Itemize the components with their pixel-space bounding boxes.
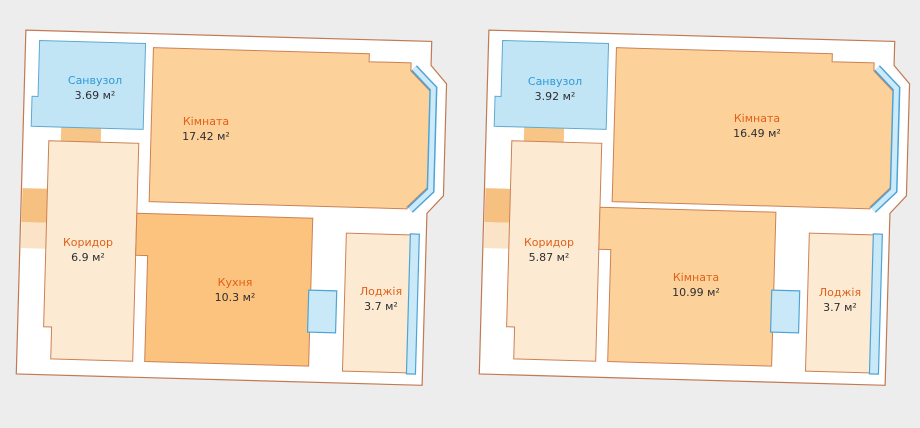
- room-bathroom-shape: [31, 40, 145, 129]
- floor-plan-left-drawing: [0, 0, 460, 410]
- room-bathroom-shape: [494, 40, 608, 129]
- room-corridor-shape: [506, 141, 602, 361]
- room-corridor-shape: [43, 141, 139, 361]
- room-living-shape: [149, 48, 431, 210]
- room-loggia-shape: [805, 233, 877, 373]
- room-living-shape: [612, 48, 894, 210]
- floor-plans-canvas: Санвузол 3.69 м² Кімната 17.42 м² Коридо…: [0, 0, 920, 428]
- kitchen-loggia-window: [308, 290, 337, 333]
- floor-plan-right-drawing: [463, 0, 920, 410]
- floor-plan-right[interactable]: Санвузол 3.92 м² Кімната 16.49 м² Коридо…: [463, 0, 920, 428]
- room-loggia-window: [771, 290, 800, 333]
- room-2-shape: [596, 207, 776, 366]
- wall-opening: [21, 222, 47, 249]
- bathroom-door-opening: [61, 126, 101, 143]
- entrance-door-opening: [22, 188, 48, 223]
- room-kitchen-shape: [133, 213, 313, 366]
- entrance-door-opening: [485, 188, 511, 223]
- bathroom-door-opening: [524, 126, 564, 143]
- wall-opening: [484, 222, 510, 249]
- room-loggia-shape: [342, 233, 414, 373]
- floor-plan-left[interactable]: Санвузол 3.69 м² Кімната 17.42 м² Коридо…: [0, 0, 460, 428]
